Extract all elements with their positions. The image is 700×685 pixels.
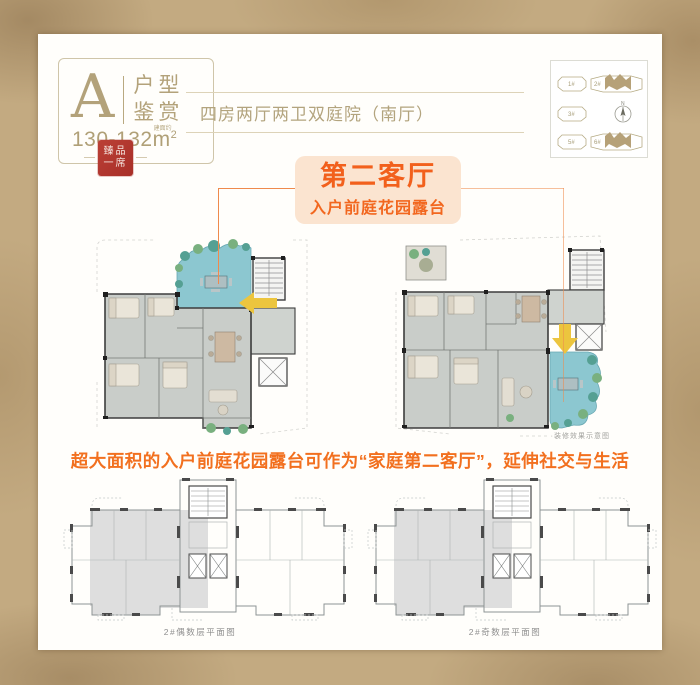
floorplan-right	[390, 232, 610, 440]
compass-n-label: N	[621, 101, 625, 107]
seal-line1: 臻品	[98, 146, 133, 159]
building-label-1: 1#	[568, 82, 575, 88]
corridor	[548, 290, 604, 324]
building-2-highlight	[605, 74, 631, 90]
render-disclaimer: ·装修效果示意图	[470, 431, 610, 441]
seal-line2: 一席	[98, 158, 133, 171]
seal-dash-right	[136, 157, 147, 158]
seal-dash-left	[84, 157, 95, 158]
floorplan-left	[93, 232, 313, 440]
callout-pointer-v-left	[218, 188, 219, 284]
callout-pointer-h-right	[461, 188, 564, 189]
callout-title: 第二客厅	[320, 162, 436, 190]
building-label-5: 5#	[568, 140, 575, 146]
poster-card: A 户型 鉴赏 130-132建面约m2 臻品 一席 四房两厅两卫双庭院（南厅）	[38, 34, 662, 650]
area-note: 建面约	[154, 123, 172, 132]
red-seal: 臻品 一席	[98, 140, 133, 176]
siteplan-svg: 1# 2# 3# 5# 6# N	[551, 61, 647, 157]
small-balcony	[406, 246, 446, 280]
poster-root: { "colors": { "accent_orange": "#f2671f"…	[0, 0, 700, 685]
callout-pointer-v-right	[563, 188, 564, 402]
building-label-2: 2#	[594, 82, 601, 88]
bw-floorplan-even	[62, 476, 354, 622]
unit-description: 四房两厅两卫双庭院（南厅）	[200, 100, 524, 125]
badge-title-line2: 鉴赏	[133, 100, 183, 126]
compass-icon: N	[615, 101, 631, 122]
unit-letter: A	[71, 69, 114, 126]
badge-title: 户型 鉴赏	[133, 73, 183, 126]
area-unit: 建面约m2	[153, 128, 178, 152]
header-block: 四房两厅两卫双庭院（南厅）	[186, 92, 524, 133]
elevator	[576, 324, 602, 350]
callout-subtitle: 入户前庭花园露台	[310, 194, 446, 218]
slogan-text: 超大面积的入户前庭花园露台可作为“家庭第二客厅”，延伸社交与生活	[38, 448, 662, 473]
corridor	[251, 308, 295, 354]
elevator	[259, 358, 287, 386]
building-label-3: 3#	[568, 112, 575, 118]
badge-title-line1: 户型	[133, 73, 183, 99]
siteplan: 1# 2# 3# 5# 6# N	[550, 60, 648, 158]
bw-floorplan-odd	[366, 476, 658, 622]
building-label-6: 6#	[594, 140, 601, 146]
bw-caption-odd: 2#奇数层平面图	[405, 626, 605, 638]
feature-callout: 第二客厅 入户前庭花园露台	[295, 156, 461, 224]
badge-divider	[123, 76, 124, 124]
callout-pointer-h-left	[218, 188, 295, 189]
highlight-arrow-down	[552, 324, 578, 354]
bw-caption-even: 2#偶数层平面图	[100, 626, 300, 638]
